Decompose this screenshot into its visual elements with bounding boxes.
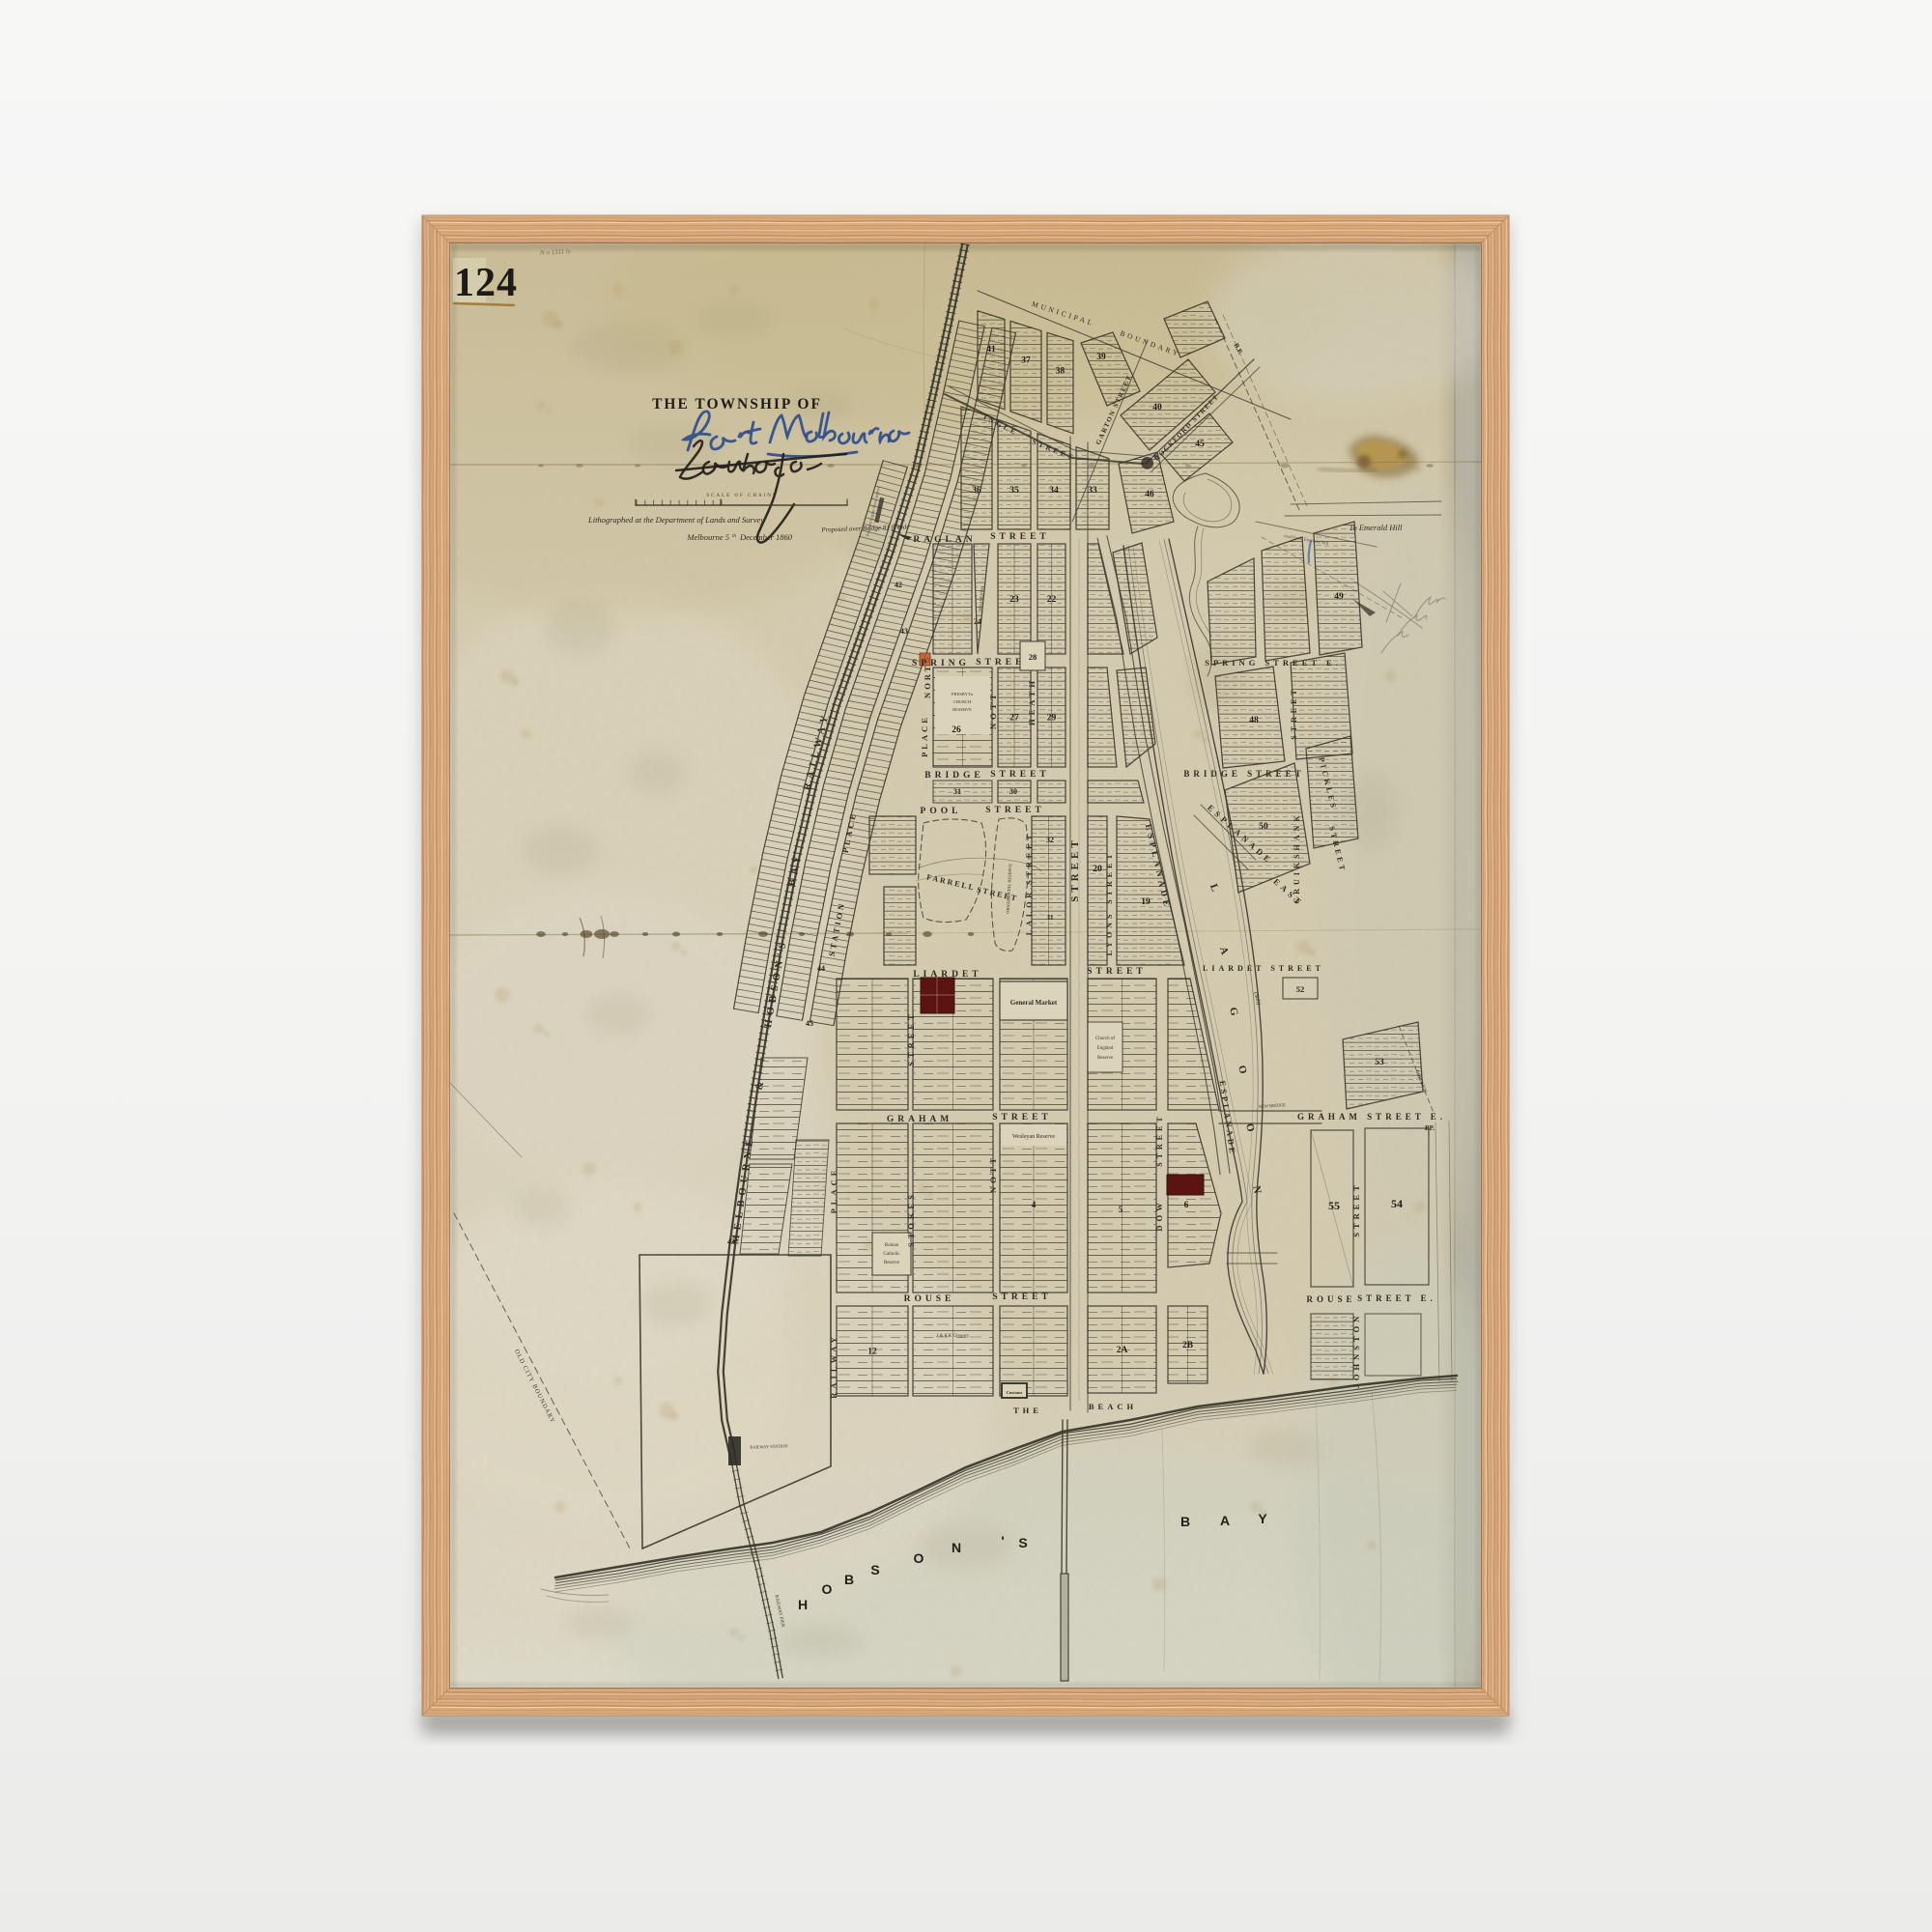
svg-text:B: B <box>1180 1514 1190 1529</box>
svg-text:S: S <box>870 1562 879 1577</box>
svg-text:55: 55 <box>1328 1199 1340 1212</box>
svg-text:th: th <box>732 534 736 539</box>
svg-text:54: 54 <box>1391 1197 1403 1210</box>
svg-text:49: 49 <box>1334 592 1344 602</box>
svg-text:POOL: POOL <box>921 807 962 816</box>
svg-text:Customs: Customs <box>1007 1390 1023 1395</box>
svg-text:22: 22 <box>1047 595 1057 605</box>
svg-text:48: 48 <box>1249 716 1259 725</box>
svg-text:STREET: STREET <box>992 1113 1052 1122</box>
svg-text:General Market: General Market <box>1010 999 1058 1007</box>
svg-text:44: 44 <box>817 964 825 973</box>
svg-text:2B: 2B <box>1182 1341 1194 1350</box>
svg-text:20: 20 <box>1093 865 1102 874</box>
svg-text:THE TOWNSHIP OF: THE TOWNSHIP OF <box>652 396 822 412</box>
svg-text:N: N <box>952 1540 961 1555</box>
svg-text:STOKES: STOKES <box>906 1191 916 1247</box>
svg-text:HEATH: HEATH <box>1027 677 1037 725</box>
svg-text:33: 33 <box>1088 486 1097 496</box>
svg-text:29: 29 <box>1047 714 1057 724</box>
svg-text:Catholic: Catholic <box>884 1252 901 1257</box>
svg-text:19: 19 <box>1141 897 1151 907</box>
svg-text:52: 52 <box>1296 984 1305 994</box>
svg-text:124: 124 <box>454 261 518 305</box>
svg-text:45: 45 <box>806 1019 813 1028</box>
svg-text:STREET: STREET <box>990 532 1050 542</box>
svg-text:Y: Y <box>1258 1511 1267 1526</box>
svg-text:BP.: BP. <box>1425 1124 1435 1132</box>
svg-text:STREET: STREET <box>1155 1113 1164 1167</box>
svg-text:': ' <box>1001 1533 1004 1548</box>
svg-text:H: H <box>798 1597 808 1612</box>
svg-text:DOW: DOW <box>1154 1199 1164 1231</box>
svg-text:England: England <box>1097 1046 1114 1051</box>
svg-text:4: 4 <box>1032 1200 1037 1209</box>
svg-text:RAGLAN: RAGLAN <box>913 535 976 545</box>
svg-text:2A: 2A <box>1117 1346 1128 1355</box>
svg-text:12: 12 <box>867 1348 877 1357</box>
svg-text:STREET: STREET <box>906 1010 916 1066</box>
svg-text:37: 37 <box>1021 355 1031 365</box>
svg-text:STREET: STREET <box>1087 967 1147 977</box>
svg-text:Reserve: Reserve <box>884 1261 900 1265</box>
svg-text:27: 27 <box>1009 714 1019 724</box>
svg-text:43: 43 <box>727 1237 735 1246</box>
svg-text:J & R K Gregory: J & R K Gregory <box>936 1334 970 1339</box>
svg-text:Church of: Church of <box>1095 1037 1115 1041</box>
svg-text:STREET: STREET <box>1105 850 1114 904</box>
svg-text:30: 30 <box>1009 787 1017 796</box>
svg-text:50: 50 <box>1259 822 1268 832</box>
svg-text:STREET: STREET <box>992 1293 1052 1302</box>
svg-text:Melbourne 5: Melbourne 5 <box>686 532 729 542</box>
svg-text:S: S <box>1018 1535 1027 1550</box>
svg-text:LALOR: LALOR <box>1025 889 1034 935</box>
svg-text:CHURCH: CHURCH <box>953 699 973 704</box>
svg-text:THE: THE <box>1013 1406 1042 1415</box>
svg-text:ROUSE: ROUSE <box>904 1294 955 1304</box>
svg-text:BEACH: BEACH <box>1089 1402 1137 1411</box>
svg-text:PRESBYTn: PRESBYTn <box>952 692 974 696</box>
svg-text:PLACE: PLACE <box>829 1167 838 1214</box>
svg-text:GRAHAM: GRAHAM <box>887 1115 952 1124</box>
svg-text:36: 36 <box>972 486 981 496</box>
svg-text:53: 53 <box>1375 1058 1384 1067</box>
svg-text:SPRING: SPRING <box>912 659 970 668</box>
svg-text:38: 38 <box>1056 367 1065 377</box>
svg-text:STREET E.: STREET E. <box>1357 1293 1436 1303</box>
svg-text:Reserve: Reserve <box>1097 1056 1114 1061</box>
svg-text:28: 28 <box>1029 652 1037 662</box>
svg-text:41: 41 <box>986 345 996 355</box>
svg-text:5: 5 <box>1119 1205 1123 1214</box>
svg-text:BRIDGE: BRIDGE <box>924 771 983 781</box>
svg-text:December 1860: December 1860 <box>739 532 793 542</box>
svg-text:26: 26 <box>952 725 961 735</box>
svg-text:31: 31 <box>1047 914 1055 922</box>
svg-text:32: 32 <box>1046 836 1054 844</box>
svg-text:NOTT: NOTT <box>988 691 998 729</box>
svg-text:NOTT: NOTT <box>988 1154 998 1193</box>
svg-text:PLACE: PLACE <box>920 715 929 757</box>
svg-text:34: 34 <box>1049 486 1059 496</box>
svg-text:40: 40 <box>1152 403 1162 412</box>
svg-text:RESERVE: RESERVE <box>952 707 972 712</box>
svg-text:Roman: Roman <box>885 1243 899 1248</box>
svg-text:39: 39 <box>1096 353 1106 362</box>
svg-text:31: 31 <box>953 787 961 796</box>
svg-text:STREET: STREET <box>985 806 1045 815</box>
svg-text:6: 6 <box>1184 1201 1189 1210</box>
svg-text:43: 43 <box>900 627 908 636</box>
svg-text:SCALE OF CHAINS: SCALE OF CHAINS <box>706 494 777 498</box>
svg-text:Lithographed at the Department: Lithographed at the Department of Lands … <box>587 515 764 525</box>
svg-text:23: 23 <box>1009 595 1019 605</box>
svg-text:STREET: STREET <box>1025 831 1034 885</box>
svg-text:Wesleyan Reserve: Wesleyan Reserve <box>1012 1134 1055 1140</box>
svg-text:45: 45 <box>1195 440 1205 449</box>
svg-text:LIARDET STREET: LIARDET STREET <box>1203 964 1324 973</box>
svg-text:RAILWAY: RAILWAY <box>829 1333 838 1399</box>
svg-text:LIARDET: LIARDET <box>913 970 981 980</box>
svg-text:O: O <box>822 1581 833 1597</box>
svg-text:ROUSE: ROUSE <box>1306 1294 1355 1304</box>
svg-text:A: A <box>1220 1513 1230 1528</box>
svg-text:To Emerald Hill: To Emerald Hill <box>1350 523 1404 532</box>
svg-text:STREET: STREET <box>990 770 1050 780</box>
svg-text:O: O <box>914 1550 924 1566</box>
svg-text:46: 46 <box>1145 490 1154 499</box>
svg-text:35: 35 <box>1009 486 1019 496</box>
svg-text:B: B <box>844 1572 854 1587</box>
svg-text:GRAHAM STREET E.: GRAHAM STREET E. <box>1297 1112 1446 1122</box>
svg-text:LYONS: LYONS <box>1105 911 1114 956</box>
svg-text:42: 42 <box>895 581 902 589</box>
